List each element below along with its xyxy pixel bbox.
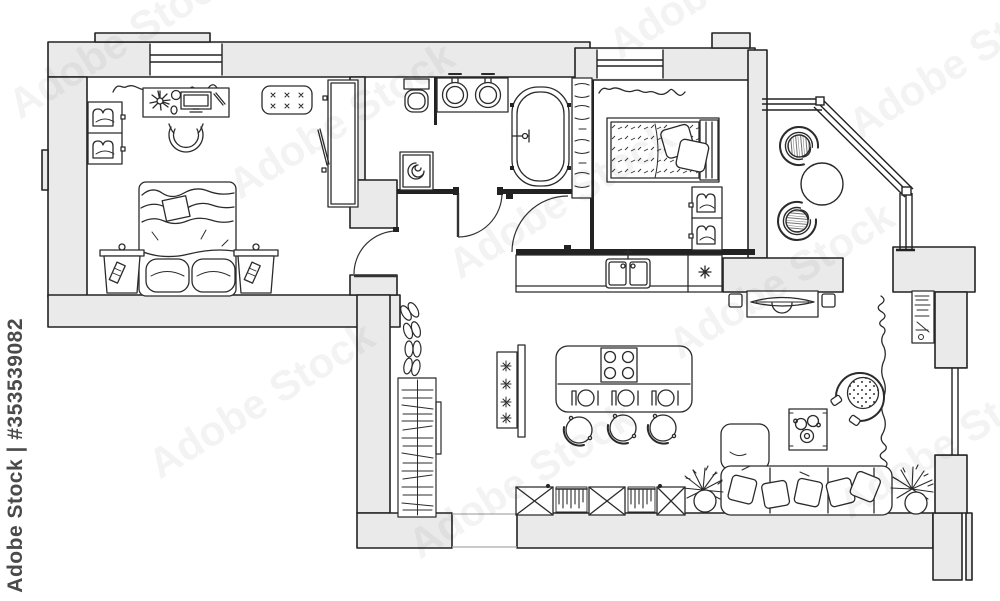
nightstand-right xyxy=(234,244,278,293)
speaker-right-icon xyxy=(822,294,835,307)
monitor-icon xyxy=(181,92,211,112)
window-bedroom1 xyxy=(150,44,222,76)
balcony-chair-top xyxy=(772,119,823,170)
wall-right-upper-chunk xyxy=(893,247,975,292)
desk-chair xyxy=(169,124,203,152)
wall-bottom-right-column xyxy=(933,513,962,580)
bookshelf xyxy=(912,291,934,343)
nightstand-left xyxy=(100,244,144,293)
coffee-table xyxy=(789,409,827,450)
shelf-unit-bedroom1 xyxy=(88,102,125,164)
mouse-icon xyxy=(171,106,177,114)
watermark-stock-id: Adobe Stock | #353539082 xyxy=(4,318,28,593)
radiator xyxy=(628,487,655,512)
svg-text:Adobe Stock: Adobe Stock xyxy=(840,0,1000,148)
radiator xyxy=(556,487,587,512)
ottoman xyxy=(262,86,312,114)
cooktop xyxy=(601,348,637,382)
floor-plan-stock-image: Adobe Stock Adobe Stock Adobe Stock Adob… xyxy=(0,0,1000,601)
curtain-bedroom2 xyxy=(599,88,685,95)
floor-plan-drawing: Adobe Stock Adobe Stock Adobe Stock Adob… xyxy=(0,0,1000,601)
crossed-cabinet xyxy=(657,487,685,515)
kitchen-counter xyxy=(516,250,722,292)
hall-wardrobe xyxy=(398,378,441,517)
double-bed xyxy=(139,182,236,296)
plant-stand xyxy=(497,345,525,437)
balcony-table xyxy=(801,163,843,205)
wall-left-notch xyxy=(42,150,48,190)
potted-plant-left xyxy=(683,466,723,512)
desk xyxy=(143,88,229,117)
shelf-unit-bedroom2 xyxy=(689,187,722,250)
wall-bottom-band xyxy=(517,513,933,548)
svg-text:Adobe Stock: Adobe Stock xyxy=(140,311,383,487)
room-hallway xyxy=(398,300,441,517)
door-bedroom1 xyxy=(354,227,399,276)
swivel-armchair xyxy=(830,373,884,426)
crossed-cabinet xyxy=(589,487,625,515)
wall-right-band-upper xyxy=(935,292,967,368)
washing-machine xyxy=(400,152,433,190)
shoes xyxy=(399,300,423,376)
wall-left xyxy=(48,77,87,297)
wall-parapet-right xyxy=(712,33,750,48)
wall-bedroom1-east-lower xyxy=(350,275,397,295)
wall-bedroom2-east xyxy=(748,50,767,258)
wall-bottom-right-outer xyxy=(966,513,972,580)
star-symbol xyxy=(699,266,711,278)
